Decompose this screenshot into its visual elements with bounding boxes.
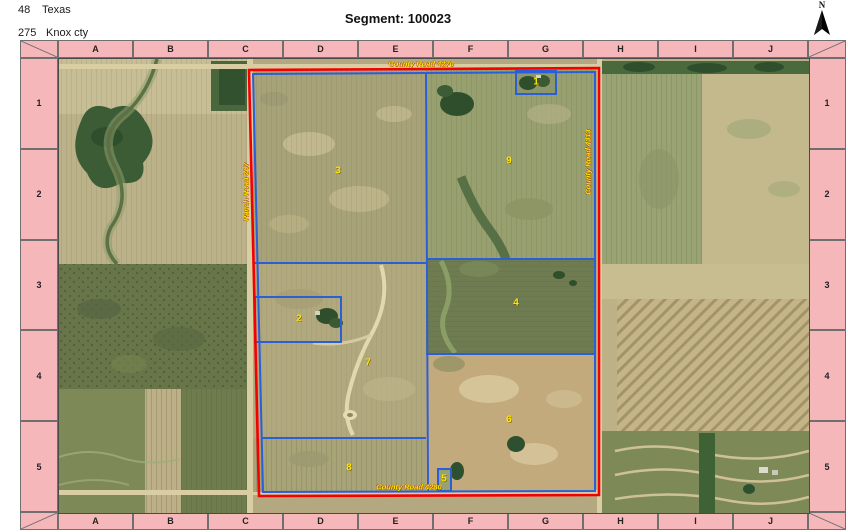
county-code: 275 <box>18 27 36 39</box>
grid-row-header: 1 <box>20 58 58 149</box>
grid-col-header: A <box>58 40 133 58</box>
north-arrow: N <box>809 1 835 41</box>
grid-corner-bottom-right <box>808 512 846 530</box>
grid-col-header: F <box>433 40 508 58</box>
grid-col-footer: C <box>208 512 283 530</box>
grid-col-header: B <box>133 40 208 58</box>
grid-corner-top-left <box>20 40 58 58</box>
grid-corner-bottom-left <box>20 512 58 530</box>
grid-col-header: I <box>658 40 733 58</box>
grid-corner-top-right <box>808 40 846 58</box>
grid-col-header: E <box>358 40 433 58</box>
county-name: Knox cty <box>46 27 88 39</box>
map-frame: A B C D E F G H I J A B C D E F G H I J … <box>20 40 846 530</box>
north-label: N <box>809 1 835 10</box>
grid-col-footer: J <box>733 512 808 530</box>
grid-col-footer: I <box>658 512 733 530</box>
grid-row-header: 4 <box>20 330 58 421</box>
grid-row-footer: 2 <box>808 149 846 240</box>
grid-row-footer: 4 <box>808 330 846 421</box>
grid-col-footer: B <box>133 512 208 530</box>
grid-col-footer: D <box>283 512 358 530</box>
grid-col-header: J <box>733 40 808 58</box>
grid-col-footer: E <box>358 512 433 530</box>
segment-map[interactable]: 1 2 3 4 5 6 7 8 9 County Road 4270 Count… <box>58 58 810 514</box>
grid-row-header: 3 <box>20 240 58 331</box>
grid-row-footer: 5 <box>808 421 846 512</box>
grid-row-footer: 1 <box>808 58 846 149</box>
segment-title: Segment: 100023 <box>345 11 451 26</box>
grid-col-header: G <box>508 40 583 58</box>
grid-row-header: 2 <box>20 149 58 240</box>
grid-col-footer: H <box>583 512 658 530</box>
grid-row-footer: 3 <box>808 240 846 331</box>
grid-col-header: C <box>208 40 283 58</box>
grid-col-footer: F <box>433 512 508 530</box>
aerial-imagery <box>59 59 809 513</box>
state-code: 48 <box>18 4 30 16</box>
grid-col-footer: A <box>58 512 133 530</box>
state-name: Texas <box>42 4 71 16</box>
north-arrow-icon <box>811 10 833 36</box>
grid-row-header: 5 <box>20 421 58 512</box>
grid-col-header: D <box>283 40 358 58</box>
grid-col-header: H <box>583 40 658 58</box>
grid-col-footer: G <box>508 512 583 530</box>
